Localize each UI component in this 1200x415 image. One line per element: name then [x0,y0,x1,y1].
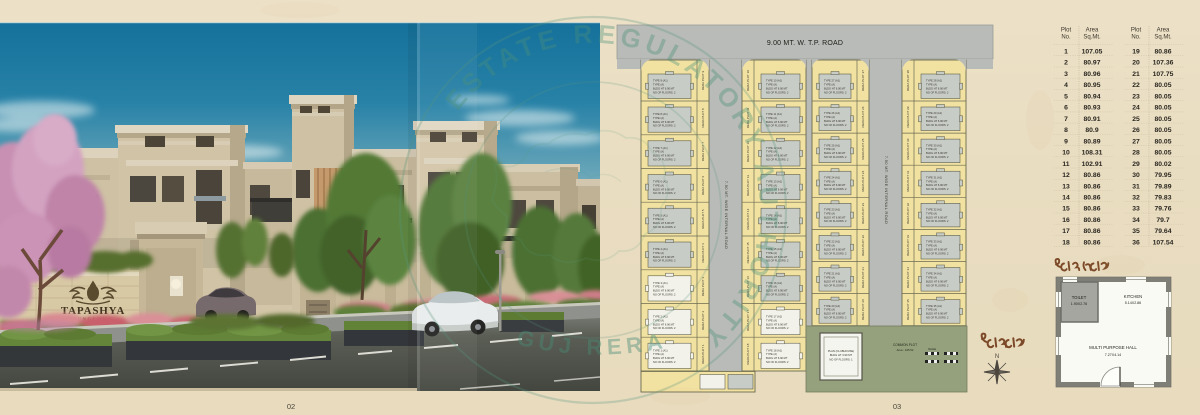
svg-text:107.05: 107.05 [1082,49,1103,56]
svg-text:27: 27 [1132,138,1140,145]
svg-text:80.86: 80.86 [1083,172,1100,179]
svg-text:TYPE 22 (A1): TYPE 22 (A1) [824,240,840,244]
svg-text:80.86: 80.86 [1154,49,1171,56]
svg-text:3: 3 [1064,71,1068,78]
svg-text:107.54: 107.54 [1153,239,1174,246]
svg-text:BLDG HT 6.90 MT: BLDG HT 6.90 MT [653,221,675,225]
svg-text:20: 20 [1132,60,1140,67]
svg-text:BLDG HT 6.90 MT: BLDG HT 6.90 MT [926,183,948,187]
svg-text:BLDG HT 6.90 MT: BLDG HT 6.90 MT [766,322,788,326]
svg-text:NO OF FLOORS: 2: NO OF FLOORS: 2 [766,326,789,330]
svg-text:1: 1 [1064,49,1068,56]
svg-text:TYPE 21 (A1): TYPE 21 (A1) [824,272,840,276]
svg-text:RERA PLOT 26: RERA PLOT 26 [861,106,865,127]
svg-text:TYPE (A): TYPE (A) [653,183,664,187]
svg-text:RERA PLOT 22: RERA PLOT 22 [861,235,865,256]
svg-text:BLDG HT 6.90 MT: BLDG HT 6.90 MT [824,87,846,91]
svg-text:BLDG HT 6.90 MT: BLDG HT 6.90 MT [824,312,846,316]
svg-text:RERA PLOT 1: RERA PLOT 1 [701,344,705,364]
svg-text:RERA PLOT 34: RERA PLOT 34 [906,267,910,288]
svg-text:RERA PLOT 4: RERA PLOT 4 [701,243,705,263]
svg-text:TYPE (A): TYPE (A) [766,116,777,120]
svg-text:TYPE 11 (A1): TYPE 11 (A1) [766,112,782,116]
svg-text:36: 36 [1132,239,1140,246]
svg-text:6: 6 [1064,105,1068,112]
svg-text:TYPE (A): TYPE (A) [926,83,937,87]
svg-text:TYPE 32 (A1): TYPE 32 (A1) [926,208,942,212]
svg-text:RERA PLOT 3: RERA PLOT 3 [701,277,705,297]
svg-text:BLDG HT 6.90 MT: BLDG HT 6.90 MT [653,255,675,259]
svg-text:BLDG HT 6.90 MT: BLDG HT 6.90 MT [926,247,948,251]
svg-text:RERA PLOT 25: RERA PLOT 25 [861,138,865,159]
svg-text:NO OF FLOORS: 2: NO OF FLOORS: 2 [926,123,949,127]
svg-text:80.93: 80.93 [1083,105,1100,112]
svg-text:Sq.Mt.: Sq.Mt. [1154,35,1172,41]
svg-text:32: 32 [1132,195,1140,202]
svg-text:Area: Area [1086,28,1099,34]
svg-text:TYPE 35 (A1): TYPE 35 (A1) [926,304,942,308]
svg-text:MULTI PURPOSE HALL: MULTI PURPOSE HALL [1089,345,1137,350]
svg-text:7.50 MT. WIDE INTERNAL ROAD: 7.50 MT. WIDE INTERNAL ROAD [724,181,729,249]
svg-text:NO OF FLOORS: 2: NO OF FLOORS: 2 [824,219,847,223]
svg-text:No.: No. [1131,35,1141,41]
svg-text:RERA PLOT 29: RERA PLOT 29 [906,106,910,127]
svg-text:BLDG HT 6.90 MT: BLDG HT 6.90 MT [824,215,846,219]
svg-text:TYPE 8 (A1): TYPE 8 (A1) [653,112,668,116]
svg-text:02: 02 [287,402,295,411]
svg-text:KITCHEN: KITCHEN [1124,294,1142,299]
svg-text:5: 5 [1064,93,1068,100]
svg-text:TYPE 20 (A1): TYPE 20 (A1) [824,304,840,308]
svg-text:80.86: 80.86 [1083,183,1100,190]
svg-text:NO OF FLOORS: 2: NO OF FLOORS: 2 [653,158,676,162]
svg-text:TYPE 3 (A1): TYPE 3 (A1) [653,281,668,285]
svg-text:TYPE 24 (A1): TYPE 24 (A1) [824,175,840,179]
svg-text:N: N [995,354,999,360]
svg-text:NO OF FLOORS: 2: NO OF FLOORS: 2 [653,259,676,263]
svg-text:21: 21 [1132,71,1140,78]
svg-text:80.94: 80.94 [1083,93,1100,100]
svg-text:RERA PLOT 33: RERA PLOT 33 [906,235,910,256]
svg-text:TYPE 17 (A1): TYPE 17 (A1) [766,315,782,319]
svg-text:NO OF FLOORS: 2: NO OF FLOORS: 2 [766,360,789,364]
svg-text:TYPE (A): TYPE (A) [766,83,777,87]
svg-text:BLDG HT 3.90 MT: BLDG HT 3.90 MT [830,353,853,357]
svg-text:NO OF FLOORS: 2: NO OF FLOORS: 2 [926,187,949,191]
svg-text:BLDG HT 6.90 MT: BLDG HT 6.90 MT [653,187,675,191]
svg-text:TYPE 28 (A1): TYPE 28 (A1) [926,79,942,83]
svg-text:80.9: 80.9 [1085,127,1098,134]
svg-text:TYPE (A): TYPE (A) [766,352,777,356]
svg-text:TYPE 29 (A1): TYPE 29 (A1) [926,111,942,115]
svg-text:NO OF FLOORS: 1: NO OF FLOORS: 1 [829,357,853,361]
svg-text:8: 8 [1064,127,1068,134]
svg-text:TYPE (A): TYPE (A) [926,244,937,248]
svg-text:Sq.Mt.: Sq.Mt. [1083,35,1101,41]
svg-text:NO OF FLOORS: 2: NO OF FLOORS: 2 [824,123,847,127]
svg-text:30: 30 [1132,172,1140,179]
svg-text:BLDG HT 6.90 MT: BLDG HT 6.90 MT [653,120,675,124]
svg-text:28: 28 [1132,150,1140,157]
svg-text:NO OF FLOORS: 2: NO OF FLOORS: 2 [824,90,847,94]
svg-text:COMMON PLOT: COMMON PLOT [893,343,917,347]
svg-text:TYPE 10 (A1): TYPE 10 (A1) [766,79,782,83]
svg-text:79.76: 79.76 [1154,206,1171,213]
svg-text:TYPE (A): TYPE (A) [824,244,835,248]
svg-text:TYPE (A): TYPE (A) [926,115,937,119]
svg-text:BLDG HT 6.90 MT: BLDG HT 6.90 MT [653,289,675,293]
svg-text:TYPE (A): TYPE (A) [824,115,835,119]
svg-text:TYPE (A): TYPE (A) [824,276,835,280]
svg-text:RERA PLOT 13: RERA PLOT 13 [746,175,750,196]
svg-text:TYPE (A): TYPE (A) [766,318,777,322]
svg-text:NO OF FLOORS: 2: NO OF FLOORS: 2 [824,155,847,159]
svg-text:BLDG HT 6.90 MT: BLDG HT 6.90 MT [926,280,948,284]
svg-text:RERA PLOT 14: RERA PLOT 14 [746,208,750,229]
svg-text:TOILET: TOILET [1072,295,1087,300]
svg-text:TYPE (A): TYPE (A) [653,83,664,87]
svg-text:80.05: 80.05 [1154,127,1171,134]
svg-text:TYPE (A): TYPE (A) [653,116,664,120]
svg-text:TYPE 26 (A1): TYPE 26 (A1) [824,111,840,115]
svg-text:107.75: 107.75 [1153,71,1174,78]
svg-text:BLDG HT 6.90 MT: BLDG HT 6.90 MT [766,87,788,91]
svg-text:BLDG HT 6.90 MT: BLDG HT 6.90 MT [926,215,948,219]
svg-text:26: 26 [1132,127,1140,134]
svg-text:34: 34 [1132,217,1140,224]
svg-text:NO OF FLOORS: 2: NO OF FLOORS: 2 [926,251,949,255]
svg-text:TYPE 7 (A1): TYPE 7 (A1) [653,146,668,150]
svg-text:TYPE (A): TYPE (A) [653,251,664,255]
svg-text:BLDG HT 6.90 MT: BLDG HT 6.90 MT [824,119,846,123]
svg-text:5.14X2.86: 5.14X2.86 [1125,301,1141,305]
svg-text:NO OF FLOORS: 2: NO OF FLOORS: 2 [766,293,789,297]
svg-text:BLDG HT 6.90 MT: BLDG HT 6.90 MT [766,120,788,124]
svg-text:18: 18 [1062,239,1070,246]
svg-text:NO OF FLOORS: 2: NO OF FLOORS: 2 [653,90,676,94]
svg-text:31: 31 [1132,183,1140,190]
svg-text:80.05: 80.05 [1154,138,1171,145]
svg-text:TYPE (A): TYPE (A) [926,211,937,215]
svg-text:80.05: 80.05 [1154,82,1171,89]
svg-text:80.91: 80.91 [1083,116,1100,123]
svg-text:102.91: 102.91 [1082,161,1103,168]
svg-text:NO OF FLOORS: 2: NO OF FLOORS: 2 [926,316,949,320]
svg-text:80.86: 80.86 [1083,217,1100,224]
svg-text:TYPE 18 (A1): TYPE 18 (A1) [766,348,782,352]
svg-text:7: 7 [1064,116,1068,123]
svg-text:TYPE 27 (A1): TYPE 27 (A1) [824,79,840,83]
svg-text:RERA PLOT 35: RERA PLOT 35 [906,299,910,320]
svg-text:80.05: 80.05 [1154,116,1171,123]
svg-text:RERA PLOT 32: RERA PLOT 32 [906,203,910,224]
svg-text:TYPE 31 (A1): TYPE 31 (A1) [926,175,942,179]
svg-text:TYPE (A): TYPE (A) [926,147,937,151]
svg-text:Plot: Plot [1061,28,1072,34]
svg-text:Area: Area [1157,28,1170,34]
svg-text:79.95: 79.95 [1154,172,1171,179]
svg-text:RERA PLOT 30: RERA PLOT 30 [906,138,910,159]
svg-text:17: 17 [1062,228,1070,235]
svg-text:NO OF FLOORS: 2: NO OF FLOORS: 2 [766,124,789,128]
svg-text:BLDG HT 6.90 MT: BLDG HT 6.90 MT [926,312,948,316]
svg-text:Area : 445.52: Area : 445.52 [897,348,914,352]
svg-text:BLDG HT 6.90 MT: BLDG HT 6.90 MT [824,247,846,251]
svg-text:2: 2 [1064,60,1068,67]
svg-text:14: 14 [1062,195,1070,202]
svg-text:NO OF FLOORS: 2: NO OF FLOORS: 2 [926,90,949,94]
svg-text:79.83: 79.83 [1154,195,1171,202]
svg-text:79.7: 79.7 [1156,217,1169,224]
svg-text:RERA PLOT 8: RERA PLOT 8 [701,108,705,128]
svg-text:24: 24 [1132,105,1140,112]
svg-text:25: 25 [1132,116,1140,123]
svg-text:29: 29 [1132,161,1140,168]
svg-text:RERA PLOT 20: RERA PLOT 20 [861,299,865,320]
svg-text:TYPE (A): TYPE (A) [824,211,835,215]
svg-text:NO OF FLOORS: 2: NO OF FLOORS: 2 [653,360,676,364]
svg-text:RERA PLOT 18: RERA PLOT 18 [746,343,750,364]
svg-text:RERA PLOT 21: RERA PLOT 21 [861,267,865,288]
svg-text:16: 16 [1062,217,1070,224]
svg-text:80.86: 80.86 [1083,239,1100,246]
svg-text:TYPE (A): TYPE (A) [653,285,664,289]
svg-text:107.36: 107.36 [1153,60,1174,67]
svg-text:TYPE (A): TYPE (A) [926,276,937,280]
svg-text:33: 33 [1132,206,1140,213]
svg-text:BLDG HT 6.90 MT: BLDG HT 6.90 MT [824,151,846,155]
svg-text:80.05: 80.05 [1154,105,1171,112]
svg-text:80.02: 80.02 [1154,161,1171,168]
svg-text:1.90X2.76: 1.90X2.76 [1071,302,1087,306]
svg-text:RERA PLOT 28: RERA PLOT 28 [906,70,910,91]
svg-text:TYPE (A): TYPE (A) [824,308,835,312]
svg-text:79.89: 79.89 [1154,183,1171,190]
svg-text:80.96: 80.96 [1083,71,1100,78]
svg-text:TYPE 25 (A1): TYPE 25 (A1) [824,143,840,147]
svg-text:9: 9 [1064,138,1068,145]
svg-text:TYPE 33 (A1): TYPE 33 (A1) [926,240,942,244]
svg-text:RERA PLOT 10: RERA PLOT 10 [746,70,750,91]
svg-text:BLDG HT 6.90 MT: BLDG HT 6.90 MT [824,280,846,284]
svg-text:BLDG HT 6.90 MT: BLDG HT 6.90 MT [653,356,675,360]
svg-text:11: 11 [1062,161,1069,168]
svg-text:23: 23 [1132,93,1140,100]
svg-text:NO OF FLOORS: 2: NO OF FLOORS: 2 [824,187,847,191]
svg-text:13: 13 [1062,183,1070,190]
svg-text:RERA PLOT 6: RERA PLOT 6 [701,175,705,195]
svg-text:No.: No. [1061,35,1071,41]
svg-text:BLDG HT 6.90 MT: BLDG HT 6.90 MT [926,119,948,123]
svg-text:Plot: Plot [1131,28,1142,34]
svg-text:7.50 MT. WIDE INTERNAL ROAD: 7.50 MT. WIDE INTERNAL ROAD [884,156,889,224]
svg-text:10: 10 [1062,150,1070,157]
svg-text:TYPE 30 (A1): TYPE 30 (A1) [926,143,942,147]
svg-text:80.05: 80.05 [1154,93,1171,100]
svg-text:RERA PLOT 27: RERA PLOT 27 [861,70,865,91]
svg-text:TYPE (A): TYPE (A) [824,179,835,183]
svg-text:NO OF FLOORS: 2: NO OF FLOORS: 2 [824,251,847,255]
svg-text:4: 4 [1064,82,1068,89]
svg-text:TYPE 34 (A1): TYPE 34 (A1) [926,272,942,276]
svg-text:RERA PLOT 24: RERA PLOT 24 [861,170,865,191]
svg-text:03: 03 [893,402,901,411]
svg-text:BLDG HT 6.90 MT: BLDG HT 6.90 MT [766,356,788,360]
svg-text:TYPE 9 (A1): TYPE 9 (A1) [653,79,668,83]
svg-text:RERA PLOT 5: RERA PLOT 5 [701,209,705,229]
svg-text:80.86: 80.86 [1083,206,1100,213]
svg-text:BLDG HT 6.90 MT: BLDG HT 6.90 MT [653,87,675,91]
svg-text:NO OF FLOORS: 2: NO OF FLOORS: 2 [926,155,949,159]
svg-text:80.95: 80.95 [1083,82,1100,89]
svg-text:80.05: 80.05 [1154,150,1171,157]
svg-text:35: 35 [1132,228,1140,235]
svg-text:80.86: 80.86 [1083,195,1100,202]
svg-text:NO OF FLOORS: 2: NO OF FLOORS: 2 [926,219,949,223]
svg-text:RERA PLOT 31: RERA PLOT 31 [906,170,910,191]
svg-text:TYPE 23 (A1): TYPE 23 (A1) [824,208,840,212]
svg-text:22: 22 [1132,82,1140,89]
svg-text:NO OF FLOORS: 2: NO OF FLOORS: 2 [653,293,676,297]
svg-text:15: 15 [1062,206,1070,213]
svg-text:NO OF FLOORS: 2: NO OF FLOORS: 2 [653,124,676,128]
svg-text:80.97: 80.97 [1083,60,1100,67]
svg-text:9.00 MT. W. T.P. ROAD: 9.00 MT. W. T.P. ROAD [767,40,843,47]
svg-text:BLDG HT 6.90 MT: BLDG HT 6.90 MT [926,151,948,155]
svg-text:80.89: 80.89 [1083,138,1100,145]
svg-text:TYPE (A): TYPE (A) [926,179,937,183]
svg-text:NO OF FLOORS: 2: NO OF FLOORS: 2 [824,283,847,287]
svg-text:TYPE 4 (A1): TYPE 4 (A1) [653,247,668,251]
svg-text:NO OF FLOORS: 2: NO OF FLOORS: 2 [653,191,676,195]
svg-text:80.86: 80.86 [1083,228,1100,235]
svg-text:7.27X4.14: 7.27X4.14 [1105,353,1121,357]
svg-text:19: 19 [1132,49,1140,56]
svg-text:TYPE (A): TYPE (A) [824,83,835,87]
svg-text:PLAN (CLUBHOUSE): PLAN (CLUBHOUSE) [828,349,854,353]
svg-text:12: 12 [1062,172,1070,179]
svg-text:79.64: 79.64 [1154,228,1171,235]
svg-text:BLDG HT 6.90 MT: BLDG HT 6.90 MT [824,183,846,187]
svg-text:BLDG HT 6.90 MT: BLDG HT 6.90 MT [653,322,675,326]
svg-text:TYPE (A): TYPE (A) [824,147,835,151]
svg-text:NO OF FLOORS: 2: NO OF FLOORS: 2 [926,283,949,287]
svg-text:BLDG HT 6.90 MT: BLDG HT 6.90 MT [926,87,948,91]
svg-text:NO OF FLOORS: 2: NO OF FLOORS: 2 [766,90,789,94]
svg-text:NO OF FLOORS: 2: NO OF FLOORS: 2 [824,316,847,320]
svg-text:108.31: 108.31 [1082,150,1103,157]
svg-text:RERA PLOT 23: RERA PLOT 23 [861,203,865,224]
svg-text:TYPE (A): TYPE (A) [926,308,937,312]
svg-text:SCALE: SCALE [928,348,936,351]
